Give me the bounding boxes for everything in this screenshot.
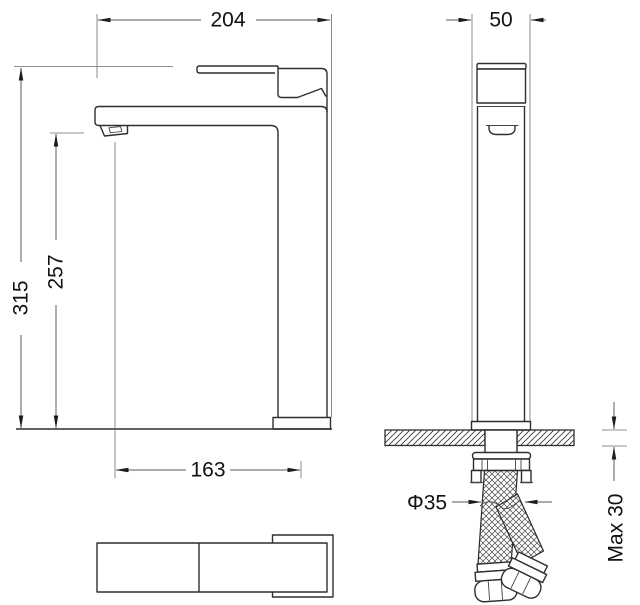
dim-max30-label: Max 30	[605, 494, 628, 563]
body-column-side	[478, 107, 525, 422]
deck-left	[385, 430, 485, 446]
dim-204: 204	[97, 9, 332, 418]
dim-315: 315	[10, 67, 174, 429]
dim-257: 257	[45, 133, 85, 428]
drawing-canvas: 204 315 257 163	[0, 0, 640, 605]
spout-top-seam	[99, 107, 327, 113]
bottom-view	[97, 535, 333, 597]
dim-phi35: Φ35	[407, 492, 552, 515]
dim-163: 163	[115, 142, 301, 482]
base-flange	[273, 418, 331, 430]
aerator-side	[489, 126, 515, 135]
dim-163-label: 163	[190, 459, 225, 482]
dim-phi35-label: Φ35	[407, 492, 447, 515]
dim-257-label: 257	[45, 254, 68, 289]
dim-max30: Max 30	[602, 402, 628, 562]
dim-315-label: 315	[10, 280, 33, 315]
faucet-technical-drawing: 204 315 257 163	[0, 0, 640, 605]
spout-outline	[95, 107, 278, 418]
handle-pivot-outline	[278, 66, 326, 98]
dim-50-label: 50	[489, 9, 512, 32]
handle-block-side	[477, 69, 526, 103]
body-spout-plan-outline	[97, 543, 327, 592]
handle-cap-side	[477, 64, 526, 70]
dim-204-label: 204	[210, 9, 245, 32]
front-view	[16, 66, 332, 429]
body-cap-top	[278, 69, 327, 75]
handle-lever-outline	[197, 66, 278, 73]
nut-wing-right	[522, 471, 532, 483]
dim-50: 50	[446, 9, 546, 32]
base-collar-side	[472, 422, 531, 431]
shank	[485, 430, 517, 453]
supply-hoses	[473, 471, 551, 603]
washer	[473, 453, 531, 460]
aerator-insert	[109, 127, 122, 133]
deck-right	[517, 430, 574, 446]
nut-wing-left	[472, 471, 482, 483]
